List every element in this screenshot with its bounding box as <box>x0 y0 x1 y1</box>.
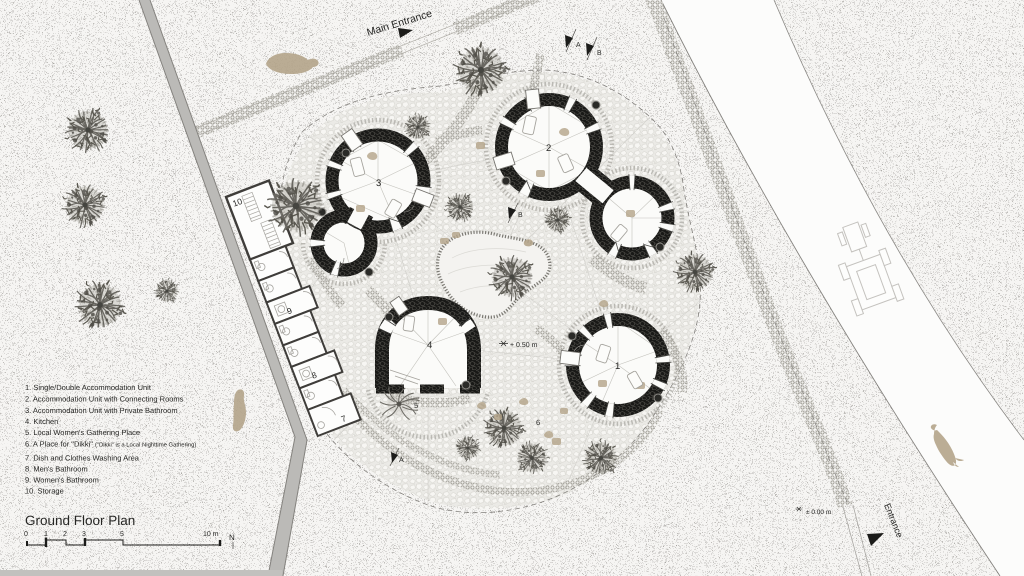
svg-text:4: 4 <box>427 340 432 351</box>
svg-text:10 m: 10 m <box>203 531 219 538</box>
svg-text:3: 3 <box>376 178 381 189</box>
svg-text:4. Kitchen: 4. Kitchen <box>25 417 58 426</box>
svg-text:N: N <box>229 533 235 542</box>
svg-text:3. Accommodation Unit with Pri: 3. Accommodation Unit with Private Bathr… <box>25 406 178 415</box>
svg-text:2: 2 <box>63 531 67 538</box>
svg-text:10. Storage: 10. Storage <box>25 487 64 496</box>
svg-text:5. Local Women's Gathering Pla: 5. Local Women's Gathering Place <box>25 428 140 437</box>
svg-text:+ 0.50 m: + 0.50 m <box>510 342 538 349</box>
svg-text:Ground Floor Plan: Ground Floor Plan <box>25 513 135 528</box>
svg-text:2. Accommodation Unit with Con: 2. Accommodation Unit with Connecting Ro… <box>25 395 184 404</box>
svg-text:A: A <box>576 42 581 49</box>
svg-text:B: B <box>518 212 523 219</box>
svg-text:8. Men's Bathroom: 8. Men's Bathroom <box>25 465 88 474</box>
svg-text:A: A <box>399 457 404 464</box>
svg-text:± 0.00 m: ± 0.00 m <box>806 509 831 516</box>
svg-text:3: 3 <box>82 531 86 538</box>
svg-text:B: B <box>597 50 602 57</box>
svg-text:1. Single/Double Accommodation: 1. Single/Double Accommodation Unit <box>25 383 152 392</box>
svg-text:5: 5 <box>414 401 418 410</box>
svg-text:2: 2 <box>546 143 551 154</box>
svg-text:6: 6 <box>536 418 540 427</box>
svg-text:7. Dish and Clothes Washing Ar: 7. Dish and Clothes Washing Area <box>25 454 140 463</box>
svg-text:5: 5 <box>120 531 124 538</box>
svg-text:0: 0 <box>24 531 28 538</box>
svg-text:1: 1 <box>615 361 620 372</box>
svg-text:9. Women's Bathroom: 9. Women's Bathroom <box>25 476 99 485</box>
svg-text:1: 1 <box>44 531 48 538</box>
